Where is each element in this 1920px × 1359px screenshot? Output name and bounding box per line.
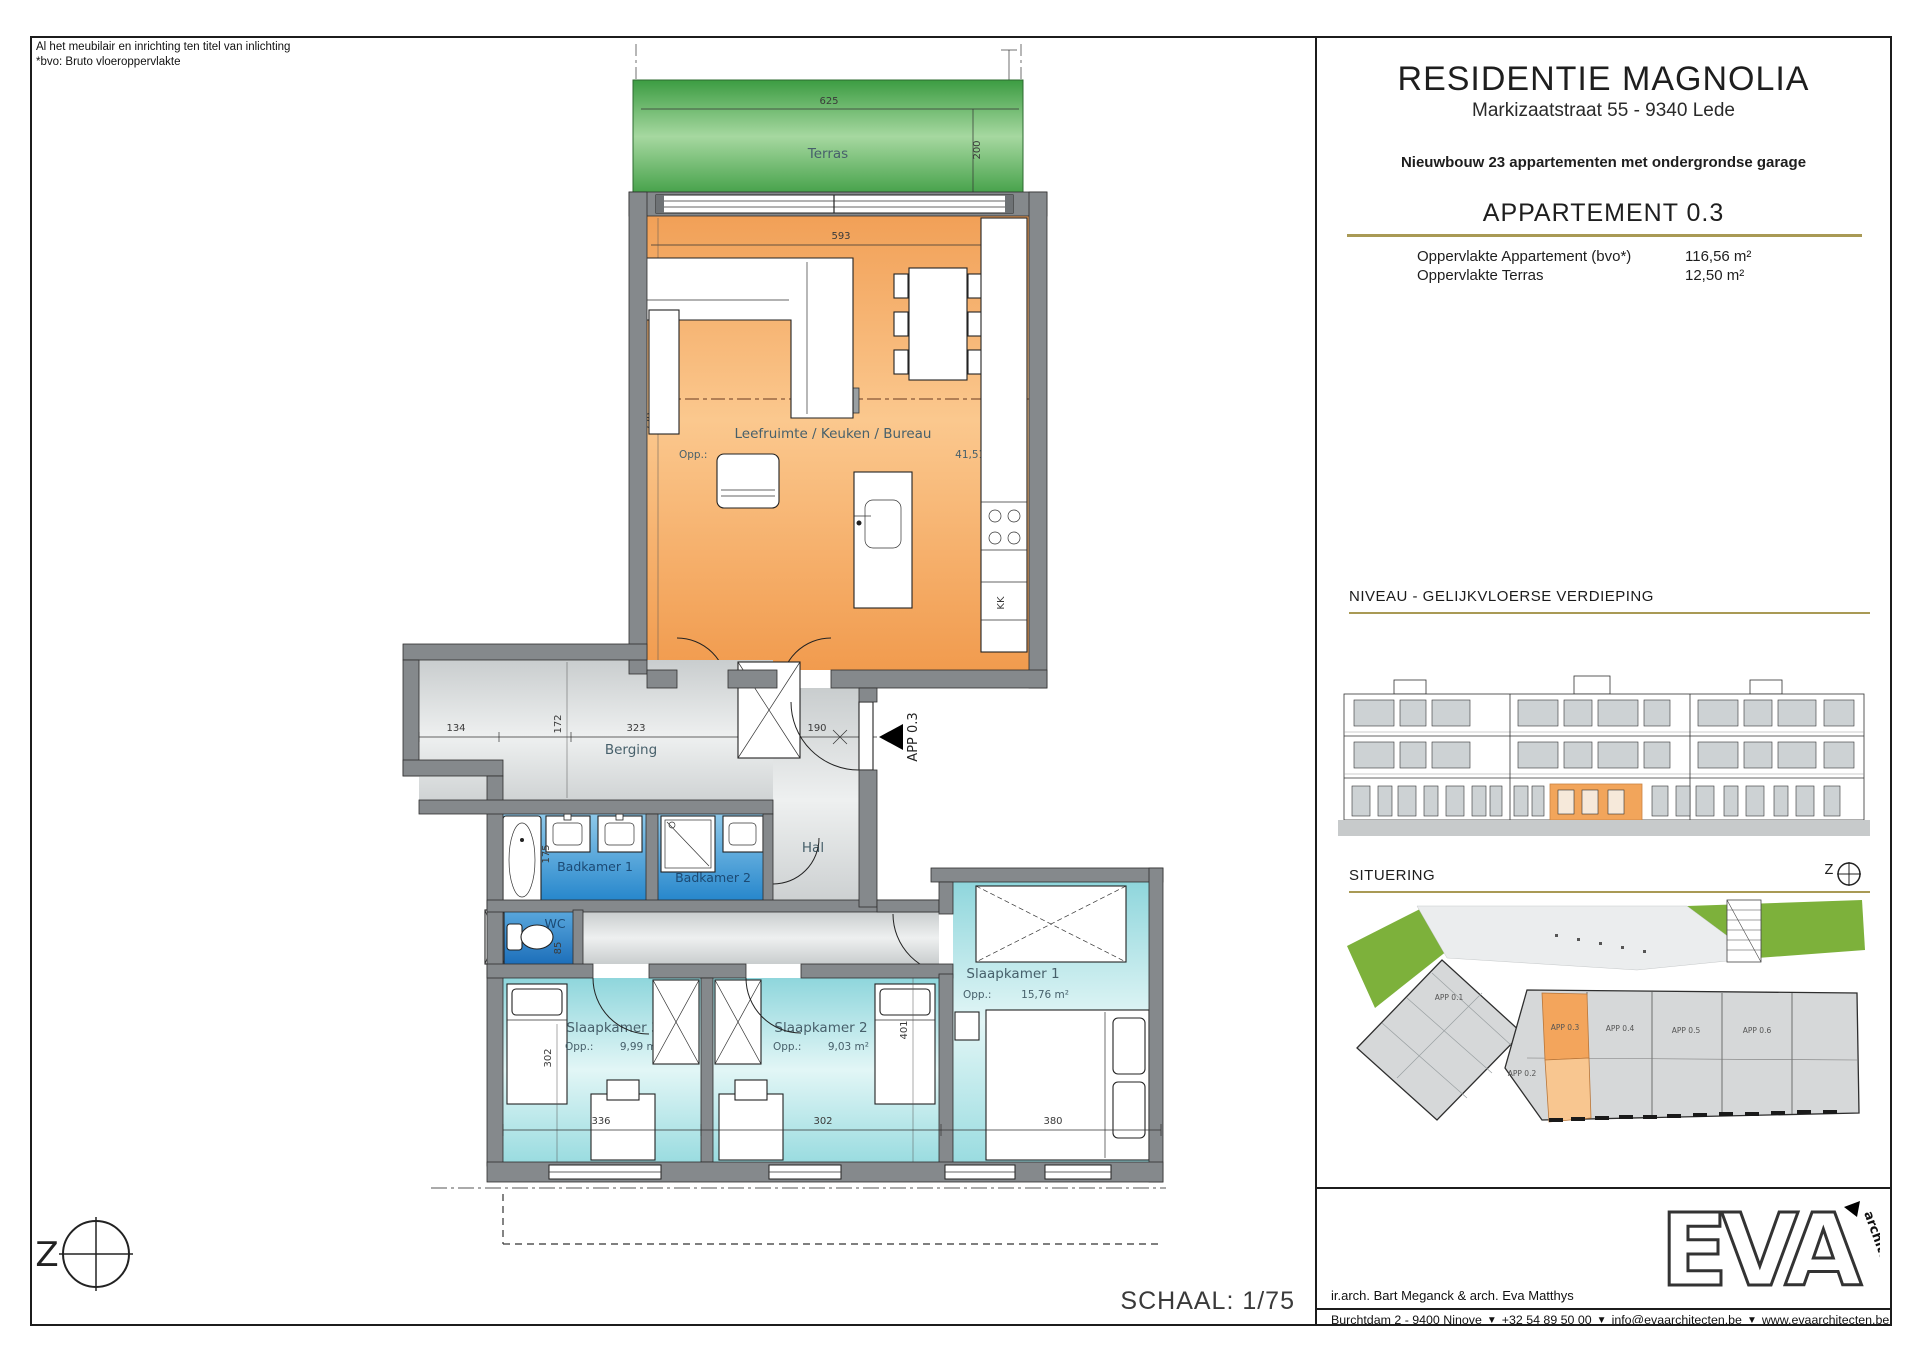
contact-phone: +32 54 89 50 00 <box>1502 1313 1592 1327</box>
situering-heading: SITUERING <box>1349 867 1435 884</box>
sk2-area: 9,03 m² <box>828 1041 869 1053</box>
contact-line: Burchtdam 2 - 9400 Ninove▼+32 54 89 50 0… <box>1331 1313 1889 1327</box>
washbasin <box>546 816 590 852</box>
dim-sk3-height: 302 <box>543 1048 554 1067</box>
spec-value: 12,50 m² <box>1685 267 1744 284</box>
badkamer2-label: Badkamer 2 <box>675 870 751 885</box>
footer-rule <box>1317 1308 1890 1310</box>
site-unit-label: APP 0.6 <box>1743 1026 1772 1035</box>
highlighted-unit <box>1542 993 1591 1122</box>
site-unit-label: APP 0.1 <box>1435 993 1464 1002</box>
desk <box>591 1094 655 1160</box>
gold-rule <box>1349 612 1870 614</box>
room-badkamer1: Badkamer 1 175 250 <box>503 814 646 912</box>
north-compass-icon: Z <box>35 1217 133 1291</box>
compass-letter: Z <box>35 1235 58 1275</box>
nightstand <box>955 1012 979 1040</box>
leefruimte-opp-label: Opp.: <box>679 449 707 461</box>
dim-terras-width: 625 <box>819 96 838 107</box>
entrance-label: APP 0.3 <box>906 712 921 761</box>
dim-berging-left: 134 <box>446 723 465 734</box>
kitchen-island <box>854 472 912 608</box>
leefruimte-label: Leefruimte / Keuken / Bureau <box>735 426 932 442</box>
note-line-2: *bvo: Bruto vloeroppervlakte <box>36 55 290 70</box>
spec-value: 116,56 m² <box>1685 248 1751 265</box>
chair <box>607 1080 639 1100</box>
pillow <box>1113 1018 1145 1074</box>
architect-block: EVA architecten ir.arch. Bart Meganck & … <box>1317 1187 1890 1324</box>
wc-label: WC <box>544 916 565 931</box>
fridge-label: KK <box>996 596 1007 610</box>
gold-rule <box>1347 234 1862 237</box>
project-address: Markizaatstraat 55 - 9340 Lede <box>1317 100 1890 122</box>
spec-row: Oppervlakte Appartement (bvo*) 116,56 m² <box>1417 248 1850 265</box>
room-terras: 625 200 Terras <box>633 80 1023 193</box>
dim-bk1-height: 175 <box>541 844 552 863</box>
stairs <box>1727 900 1761 962</box>
project-title: RESIDENTIE MAGNOLIA <box>1317 60 1890 99</box>
eva-logo: EVA architecten <box>1658 1197 1880 1295</box>
entry-arrow-icon <box>879 724 903 750</box>
note-line-1: Al het meubilair en inrichting ten titel… <box>36 40 290 55</box>
terrace-window <box>656 195 1013 213</box>
compass-letter: Z <box>1825 863 1834 878</box>
spec-label: Oppervlakte Appartement (bvo*) <box>1417 248 1631 265</box>
elevation-drawing <box>1332 638 1877 848</box>
plan-sheet: Al het meubilair en inrichting ten titel… <box>30 36 1319 1326</box>
elevation-highlight <box>1550 784 1642 820</box>
hal-label: Hal <box>802 840 824 856</box>
dining-table <box>909 268 967 380</box>
sheet-notes: Al het meubilair en inrichting ten titel… <box>36 40 290 70</box>
chair <box>735 1080 767 1100</box>
dim-entry-width: 190 <box>807 723 826 734</box>
room-badkamer2: Badkamer 2 175 <box>658 814 763 912</box>
triangle-icon: ▼ <box>1487 1315 1497 1326</box>
toilet <box>507 924 522 950</box>
spec-label: Oppervlakte Terras <box>1417 267 1543 284</box>
dim-sk1-width: 380 <box>1043 1116 1062 1127</box>
dim-sk2-width: 302 <box>813 1116 832 1127</box>
sk2-opp-label: Opp.: <box>773 1041 801 1053</box>
slaapkamer1-label: Slaapkamer 1 <box>966 966 1059 982</box>
desk <box>719 1094 783 1160</box>
architects-names: ir.arch. Bart Meganck & arch. Eva Matthy… <box>1331 1288 1890 1308</box>
site-unit-label: APP 0.2 <box>1508 1069 1537 1078</box>
contact-email: info@evaarchitecten.be <box>1612 1313 1742 1327</box>
armchair <box>717 454 779 508</box>
site-unit-label: APP 0.4 <box>1606 1024 1635 1033</box>
dim-berging-width: 323 <box>626 723 645 734</box>
pillow <box>1113 1082 1145 1138</box>
badkamer1-label: Badkamer 1 <box>557 859 633 874</box>
title-block: RESIDENTIE MAGNOLIA Markizaatstraat 55 -… <box>1315 36 1892 1326</box>
contact-address: Burchtdam 2 - 9400 Ninove <box>1331 1313 1482 1327</box>
slaapkamer2-label: Slaapkamer 2 <box>774 1020 867 1036</box>
situering-compass-icon: Z <box>1817 856 1867 890</box>
site-unit-label: APP 0.5 <box>1672 1026 1701 1035</box>
site-unit-label: APP 0.3 <box>1551 1023 1580 1032</box>
dim-terras-depth: 200 <box>972 140 983 159</box>
floor-plan: 625 200 Terras 593 730 Leefruimte / Keuk… <box>32 38 1317 1324</box>
niveau-heading: NIVEAU - GELIJKVLOERSE VERDIEPING <box>1349 588 1654 605</box>
terras-label: Terras <box>807 146 848 162</box>
dim-living-width: 593 <box>831 231 850 242</box>
washbasin <box>598 816 642 852</box>
site-plan: APP 0.1 APP 0.2 APP 0.3 APP 0.4 APP 0.5 … <box>1337 898 1872 1166</box>
project-subtitle: Nieuwbouw 23 appartementen met ondergron… <box>1317 154 1890 171</box>
logo-sub: architecten <box>1860 1209 1880 1293</box>
dim-sk3-width: 336 <box>591 1116 610 1127</box>
unit-title: APPARTEMENT 0.3 <box>1317 199 1890 228</box>
triangle-icon: ▼ <box>1747 1315 1757 1326</box>
dim-wc: 85 <box>553 942 564 955</box>
kitchen-counter <box>981 218 1027 652</box>
guide-lines <box>636 44 1021 80</box>
contact-website: www.evaarchitecten.be <box>1762 1313 1889 1327</box>
triangle-icon: ▼ <box>1597 1315 1607 1326</box>
gold-rule <box>1349 891 1870 893</box>
room-leefruimte: 593 730 Leefruimte / Keuken / Bureau Opp… <box>633 216 1045 688</box>
scale-label: SCHAAL: 1/75 <box>1120 1287 1295 1316</box>
dim-sk1-height: 401 <box>899 1020 910 1039</box>
dim-berging-height: 172 <box>553 714 564 733</box>
boundary-lines <box>431 1188 1166 1244</box>
berging-label: Berging <box>605 742 657 758</box>
entry-door-leaf <box>859 702 873 770</box>
spec-row: Oppervlakte Terras 12,50 m² <box>1417 267 1850 284</box>
logo-main: EVA <box>1660 1197 1862 1295</box>
sk3-opp-label: Opp.: <box>565 1041 593 1053</box>
sk1-opp-label: Opp.: <box>963 989 991 1001</box>
cabinet <box>649 310 679 434</box>
sk1-area: 15,76 m² <box>1021 989 1069 1001</box>
ground-strip <box>1338 820 1870 836</box>
